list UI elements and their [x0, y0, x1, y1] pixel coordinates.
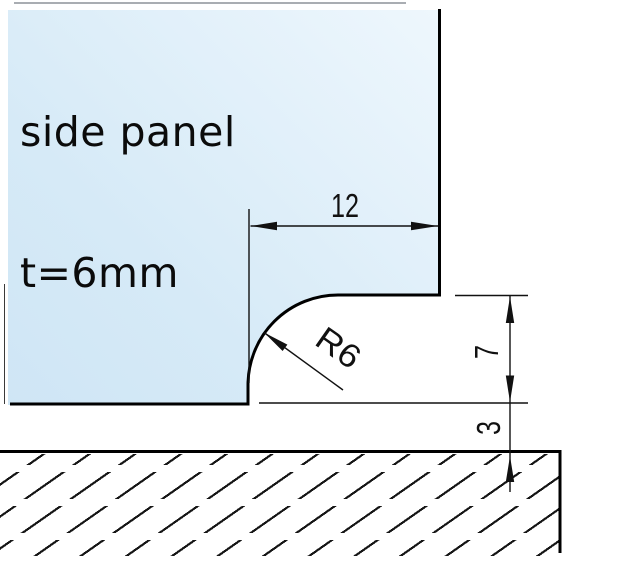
- drawing-canvas: 12 7 3 R6 side panel t=6mm: [0, 0, 628, 565]
- arrowhead-7-bottom: [506, 376, 514, 403]
- dimension-value-radius: R6: [309, 319, 368, 376]
- dimension-value-12: 12: [331, 187, 359, 224]
- arrowhead-3-bottom: [506, 456, 514, 482]
- ground-outline: [0, 452, 560, 554]
- dimension-value-7: 7: [468, 345, 505, 359]
- arrowhead-7-top: [506, 297, 514, 324]
- dimension-value-3: 3: [470, 421, 507, 435]
- panel-annotation-line2: t=6mm: [20, 250, 236, 297]
- arrowhead-radius-leader: [264, 333, 287, 352]
- arrowhead-12-left: [251, 222, 278, 230]
- panel-annotation-line1: side panel: [20, 109, 236, 156]
- panel-annotation: side panel t=6mm: [20, 15, 236, 391]
- cropped-extension-line-left: [4, 284, 5, 404]
- arrowhead-12-right: [411, 222, 438, 230]
